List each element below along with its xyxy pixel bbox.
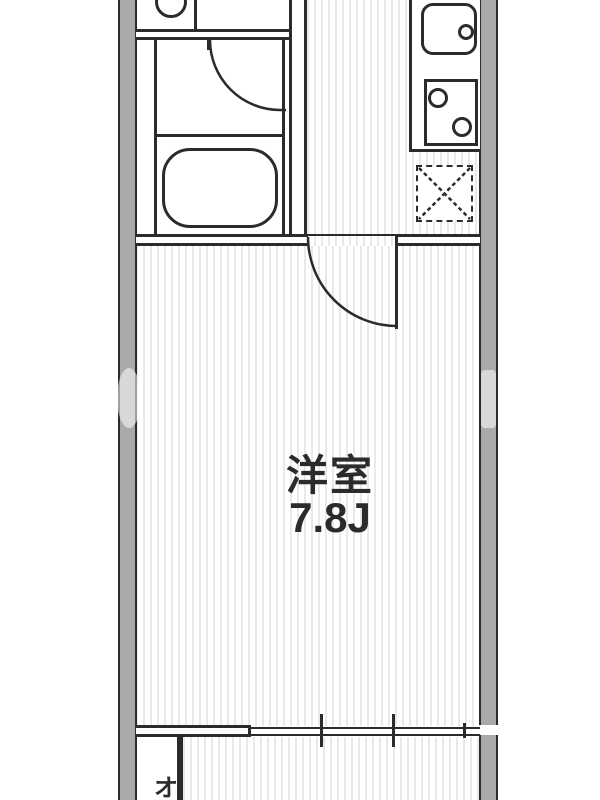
bottom-wall-left xyxy=(136,725,250,737)
toilet-room-bottom-wall xyxy=(136,29,290,40)
sliding-window-tick-1 xyxy=(320,714,323,747)
hallway-left-wall xyxy=(289,0,307,236)
toilet-room-right-wall xyxy=(194,0,197,30)
toilet-icon xyxy=(155,0,187,18)
room-door-panel xyxy=(395,236,398,329)
doorway-header-line xyxy=(308,234,397,236)
bathroom-right-wall xyxy=(282,40,285,235)
washroom-door-jamb xyxy=(207,40,210,50)
washroom-bath-divider-wall xyxy=(154,134,285,137)
washroom-door-arc-icon xyxy=(210,40,286,110)
sliding-window-endcap-right xyxy=(463,723,466,738)
watermark-fragment xyxy=(481,370,496,428)
washing-machine-space-icon xyxy=(416,165,473,222)
balcony-label: オ xyxy=(146,768,186,800)
sliding-window-tick-2 xyxy=(392,714,395,747)
apartment-floorplan: 洋室 7.8J オ xyxy=(0,0,600,800)
main-room-top-wall-left xyxy=(136,234,308,246)
balcony-floor xyxy=(183,737,480,800)
sliding-window xyxy=(248,727,480,736)
outer-wall-right-upper xyxy=(479,0,498,725)
stove-burner-icon xyxy=(452,117,472,137)
watermark-fragment xyxy=(117,368,141,428)
bathroom-left-wall xyxy=(154,40,157,235)
main-room-top-wall-right xyxy=(397,234,480,246)
main-room-size-label: 7.8J xyxy=(230,494,430,542)
sliding-window-endcap-left xyxy=(248,725,251,737)
stove-burner-icon xyxy=(428,88,448,108)
outer-wall-right-lower xyxy=(479,735,498,800)
faucet-icon xyxy=(458,24,474,40)
main-room-name-label: 洋室 xyxy=(230,442,430,490)
bathtub-icon xyxy=(162,148,278,228)
